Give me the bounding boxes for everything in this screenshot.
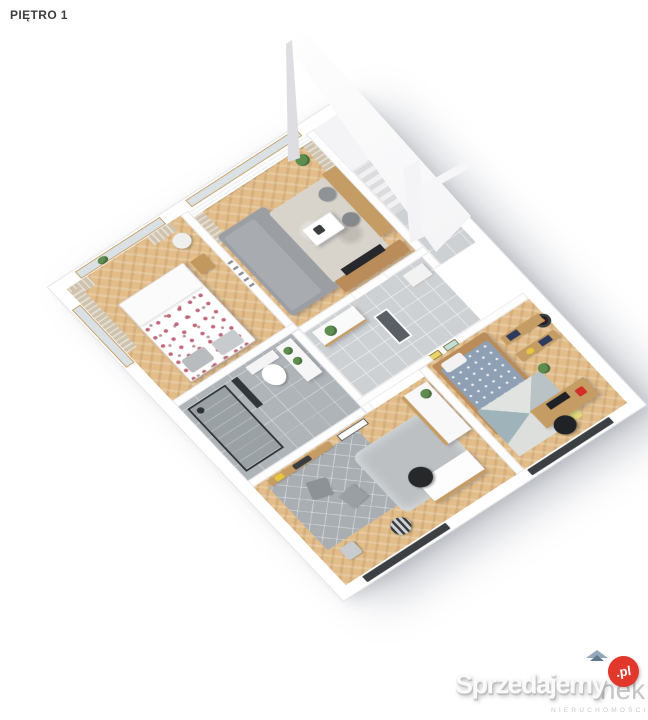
watermark-primary-text: Sprzedajemy	[455, 669, 605, 700]
watermark-subtitle: NIERUCHOMOŚCI	[551, 707, 648, 714]
house-roof-icon	[586, 650, 608, 665]
floorplan	[48, 91, 646, 601]
roof-inner	[590, 655, 604, 661]
screenshot-root: PIĘTRO 1	[0, 0, 648, 720]
floorplan-scene	[0, 0, 648, 720]
